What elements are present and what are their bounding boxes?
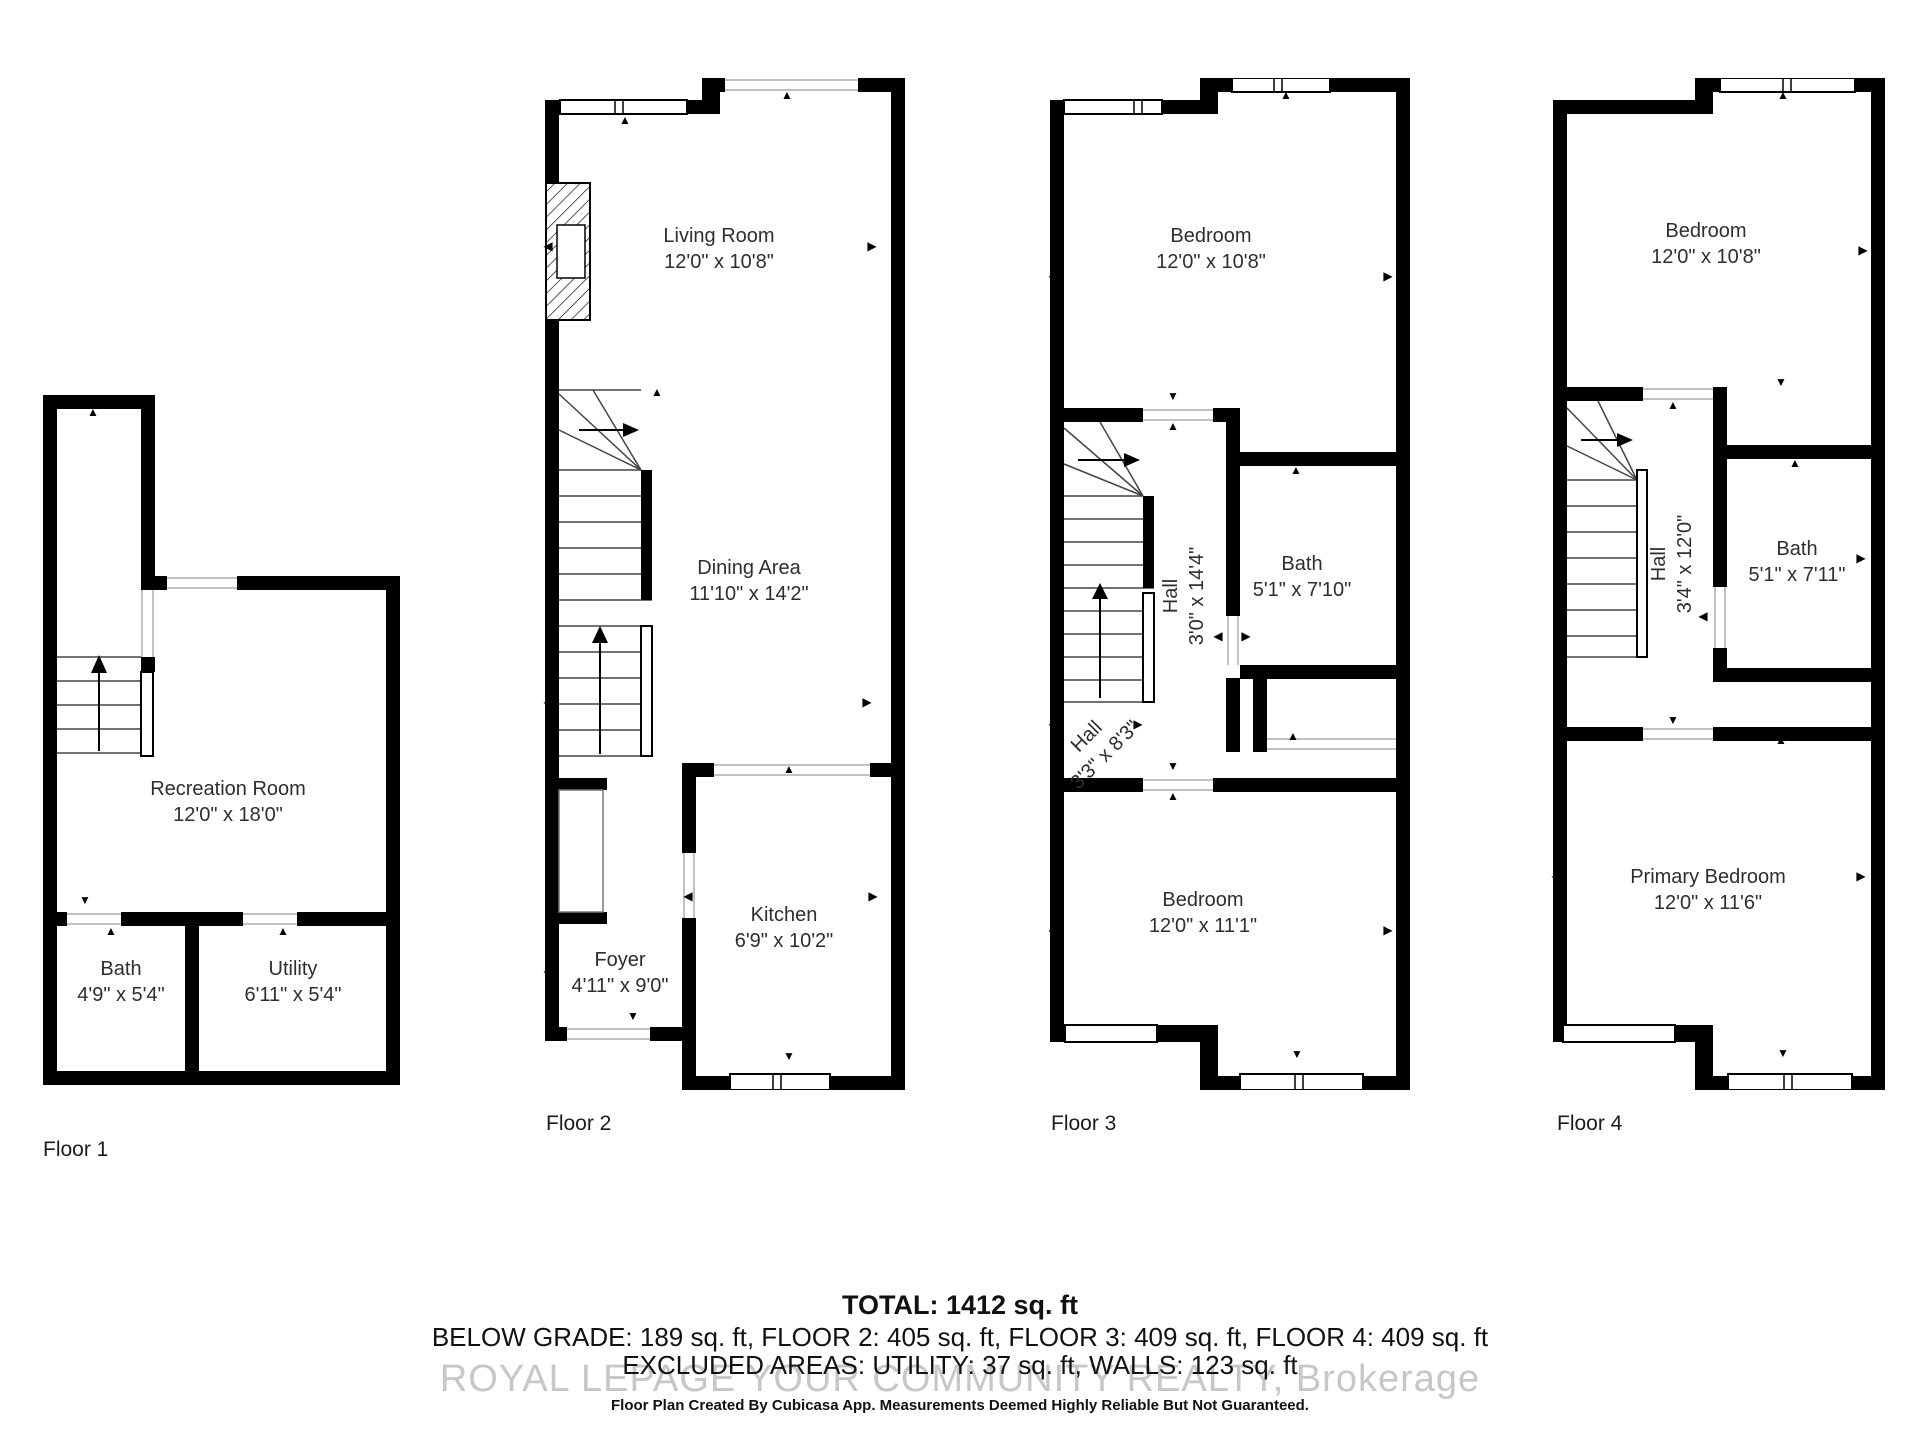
room-name: Kitchen [684, 903, 884, 928]
floor-2-plan: ▲ ▲ ◀ ▶ ▲ ◀ ▶ ▲ ◀ ▶ ◀ ▼ ▼ Living Room 12… [545, 78, 905, 1090]
total-area-text: TOTAL: 1412 sq. ft [0, 1290, 1920, 1321]
room-dims: 12'0" x 11'6" [1553, 890, 1863, 916]
stairs-icon [57, 655, 153, 756]
floor-1-plan: ▲ ◀ ◀ ▼ ▲ ▲ Recreation Room 12'0" x 18'0… [43, 395, 400, 1085]
door-marker-icon: ▼ [1289, 666, 1301, 678]
door-marker-icon: ▲ [651, 386, 663, 398]
door-marker-icon: ▲ [1667, 399, 1679, 411]
room-dims: 12'0" x 18'0" [88, 802, 368, 828]
room-dims: 4'9" x 5'4" [61, 982, 181, 1008]
room-name: Bedroom [1071, 224, 1351, 249]
door-marker-icon: ▼ [1167, 390, 1179, 402]
door-marker-icon: ◀ [1048, 718, 1057, 730]
room-label-bath: Bath 4'9" x 5'4" [61, 957, 181, 1008]
door-marker-icon: ▲ [1167, 420, 1179, 432]
floor-1-caption: Floor 1 [43, 1138, 108, 1162]
room-label-bedroom-bottom: Bedroom 12'0" x 11'1" [1063, 888, 1343, 939]
door-marker-icon: ▲ [1789, 457, 1801, 469]
door-marker-icon: ▲ [783, 763, 795, 775]
room-label-primary: Primary Bedroom 12'0" x 11'6" [1553, 865, 1863, 916]
floor-4-plan: ▲ ▶ ▼ ▲ ▲ ◀ ▶ ▼ ▼ ▲ ◀ ▶ ▼ Bedroom 12'0" … [1553, 78, 1885, 1090]
door-marker-icon: ◀ [44, 777, 53, 789]
door-marker-icon: ◀ [1048, 924, 1057, 936]
door-marker-icon: ▲ [1775, 734, 1787, 746]
disclaimer-text: Floor Plan Created By Cubicasa App. Meas… [0, 1397, 1920, 1414]
closet [559, 790, 603, 912]
door-marker-icon: ▼ [783, 1050, 795, 1062]
floor-3-plan: ▲ ◀ ▶ ▼ ▲ ▲ ◀ ▶ ▼ ▲ ◀ ▶ ▼ ▲ ◀ ▶ ▼ Bedroo… [1050, 78, 1410, 1090]
stairs-icon [1567, 401, 1647, 657]
room-name: Living Room [579, 224, 859, 249]
door-marker-icon: ▼ [1777, 1047, 1789, 1059]
door-marker-icon: ◀ [683, 890, 692, 902]
door-marker-icon: ▼ [1167, 760, 1179, 772]
door-marker-icon: ▲ [619, 114, 631, 126]
door-marker-icon: ◀ [543, 240, 552, 252]
door-marker-icon: ▶ [1241, 630, 1250, 642]
door-marker-icon: ▲ [277, 925, 289, 937]
door-marker-icon: ▲ [1777, 89, 1789, 101]
floor-3-caption: Floor 3 [1051, 1112, 1116, 1136]
room-name: Recreation Room [88, 777, 368, 802]
door-marker-icon: ▲ [1290, 464, 1302, 476]
room-label-kitchen: Kitchen 6'9" x 10'2" [684, 903, 884, 954]
room-dims: 6'9" x 10'2" [684, 928, 884, 954]
room-name: Bedroom [1566, 219, 1846, 244]
room-label-bedroom: Bedroom 12'0" x 10'8" [1566, 219, 1846, 270]
room-name: Primary Bedroom [1553, 865, 1863, 890]
excluded-areas-text: EXCLUDED AREAS: UTILITY: 37 sq. ft, WALL… [0, 1350, 1920, 1381]
room-label-living: Living Room 12'0" x 10'8" [579, 224, 859, 275]
door-marker-icon: ◀ [1048, 270, 1057, 282]
stair-railing [1143, 496, 1154, 588]
door-marker-icon: ▶ [867, 240, 876, 252]
door-marker-icon: ▼ [1789, 669, 1801, 681]
door-marker-icon: ▼ [1667, 714, 1679, 726]
room-name: Bath [61, 957, 181, 982]
room-label-utility: Utility 6'11" x 5'4" [208, 957, 378, 1008]
door-marker-icon: ▼ [79, 894, 91, 906]
stairs-icon [1064, 422, 1154, 702]
room-label-foyer: Foyer 4'11" x 9'0" [560, 948, 680, 999]
room-name: Foyer [560, 948, 680, 973]
door-marker-icon: ▼ [1291, 1048, 1303, 1060]
room-label-hall-upper: Hall 3'0" x 14'4" [1159, 501, 1217, 691]
door-opening [67, 578, 297, 924]
door-marker-icon: ▼ [627, 1010, 639, 1022]
door-marker-icon: ▲ [1280, 89, 1292, 101]
room-label-bath: Bath 5'1" x 7'11" [1717, 537, 1877, 588]
room-dims: 12'0" x 10'8" [579, 249, 859, 275]
room-name: Hall [1159, 501, 1184, 691]
room-dims: 4'11" x 9'0" [560, 973, 680, 999]
floor-area-breakdown: BELOW GRADE: 189 sq. ft, FLOOR 2: 405 sq… [0, 1322, 1920, 1353]
room-label-hall: Hall 3'4" x 12'0" [1647, 469, 1705, 659]
stair-railing [1637, 470, 1647, 657]
door-marker-icon: ▲ [105, 925, 117, 937]
door-marker-icon: ▶ [1858, 244, 1867, 256]
floor-2-caption: Floor 2 [546, 1112, 611, 1136]
door-marker-icon: ▶ [1383, 270, 1392, 282]
room-dims: 11'10" x 14'2" [609, 581, 889, 607]
stair-railing [141, 672, 153, 756]
door-marker-icon: ▲ [781, 89, 793, 101]
room-name: Hall [1647, 469, 1672, 659]
room-dims: 5'1" x 7'11" [1717, 562, 1877, 588]
door-marker-icon: ▶ [862, 696, 871, 708]
floor-plan-page: ▲ ◀ ◀ ▼ ▲ ▲ Recreation Room 12'0" x 18'0… [0, 0, 1920, 1440]
room-label-recreation: Recreation Room 12'0" x 18'0" [88, 777, 368, 828]
room-dims: 3'4" x 12'0" [1672, 469, 1698, 659]
room-name: Utility [208, 957, 378, 982]
room-dims: 5'1" x 7'10" [1222, 577, 1382, 603]
door-marker-icon: ▲ [87, 406, 99, 418]
floor-4-caption: Floor 4 [1557, 1112, 1622, 1136]
door-marker-icon: ◀ [543, 696, 552, 708]
door-marker-icon: ▶ [868, 890, 877, 902]
stair-railing [641, 626, 652, 756]
room-label-dining: Dining Area 11'10" x 14'2" [609, 556, 889, 607]
room-name: Bedroom [1063, 888, 1343, 913]
room-dims: 12'0" x 10'8" [1071, 249, 1351, 275]
door-marker-icon: ◀ [44, 657, 53, 669]
room-name: Bath [1717, 537, 1877, 562]
door-marker-icon: ◀ [543, 965, 552, 977]
door-marker-icon: ▼ [1775, 376, 1787, 388]
room-label-bedroom-top: Bedroom 12'0" x 10'8" [1071, 224, 1351, 275]
room-dims: 12'0" x 10'8" [1566, 244, 1846, 270]
door-marker-icon: ▲ [1167, 790, 1179, 802]
room-dims: 12'0" x 11'1" [1063, 913, 1343, 939]
room-name: Bath [1222, 552, 1382, 577]
door-marker-icon: ▲ [1287, 730, 1299, 742]
room-dims: 6'11" x 5'4" [208, 982, 378, 1008]
room-dims: 3'0" x 14'4" [1184, 501, 1210, 691]
room-name: Dining Area [609, 556, 889, 581]
door-marker-icon: ▶ [1383, 924, 1392, 936]
room-label-bath: Bath 5'1" x 7'10" [1222, 552, 1382, 603]
